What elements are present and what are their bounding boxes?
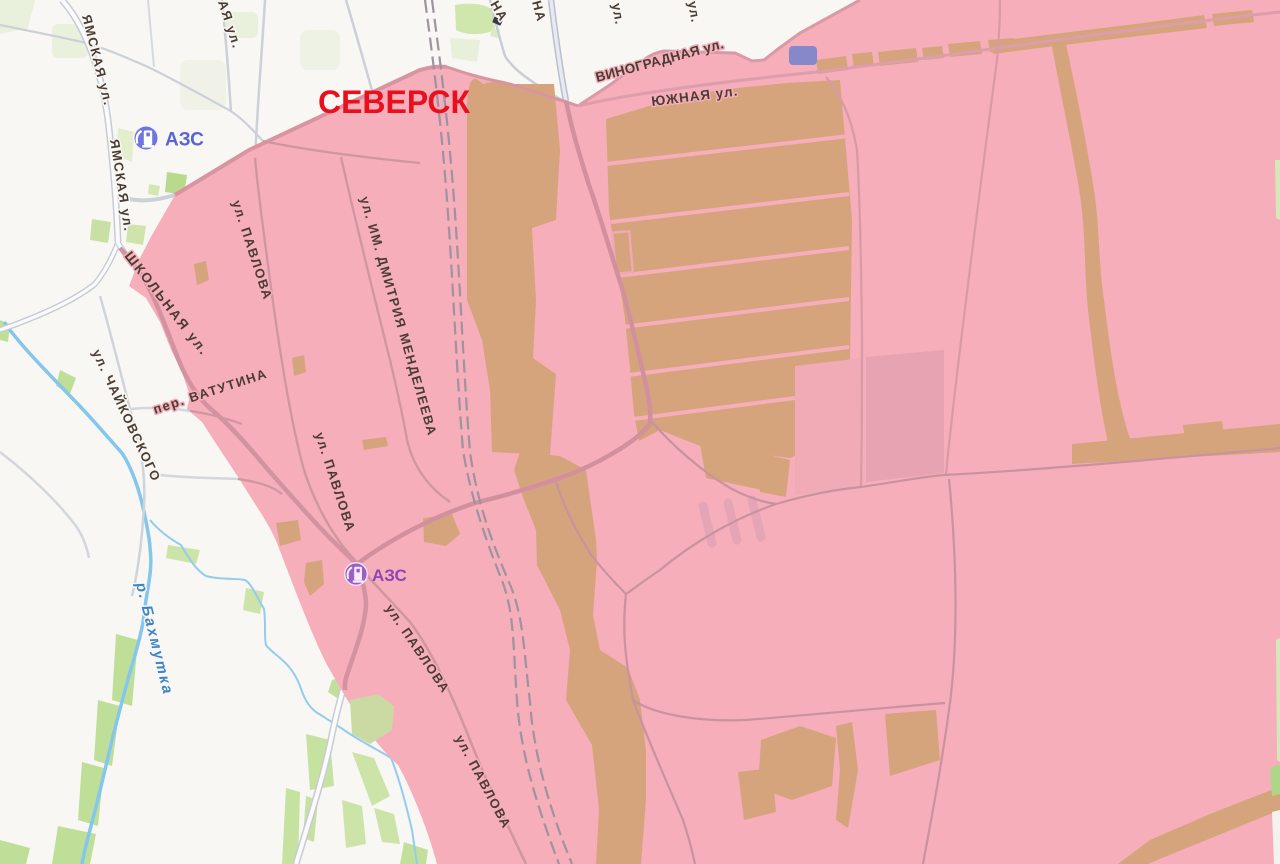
svg-text:АЗС: АЗС bbox=[165, 130, 204, 151]
svg-text:АЗС: АЗС bbox=[372, 566, 407, 585]
svg-text:СЕВЕРСК: СЕВЕРСК bbox=[318, 84, 471, 120]
